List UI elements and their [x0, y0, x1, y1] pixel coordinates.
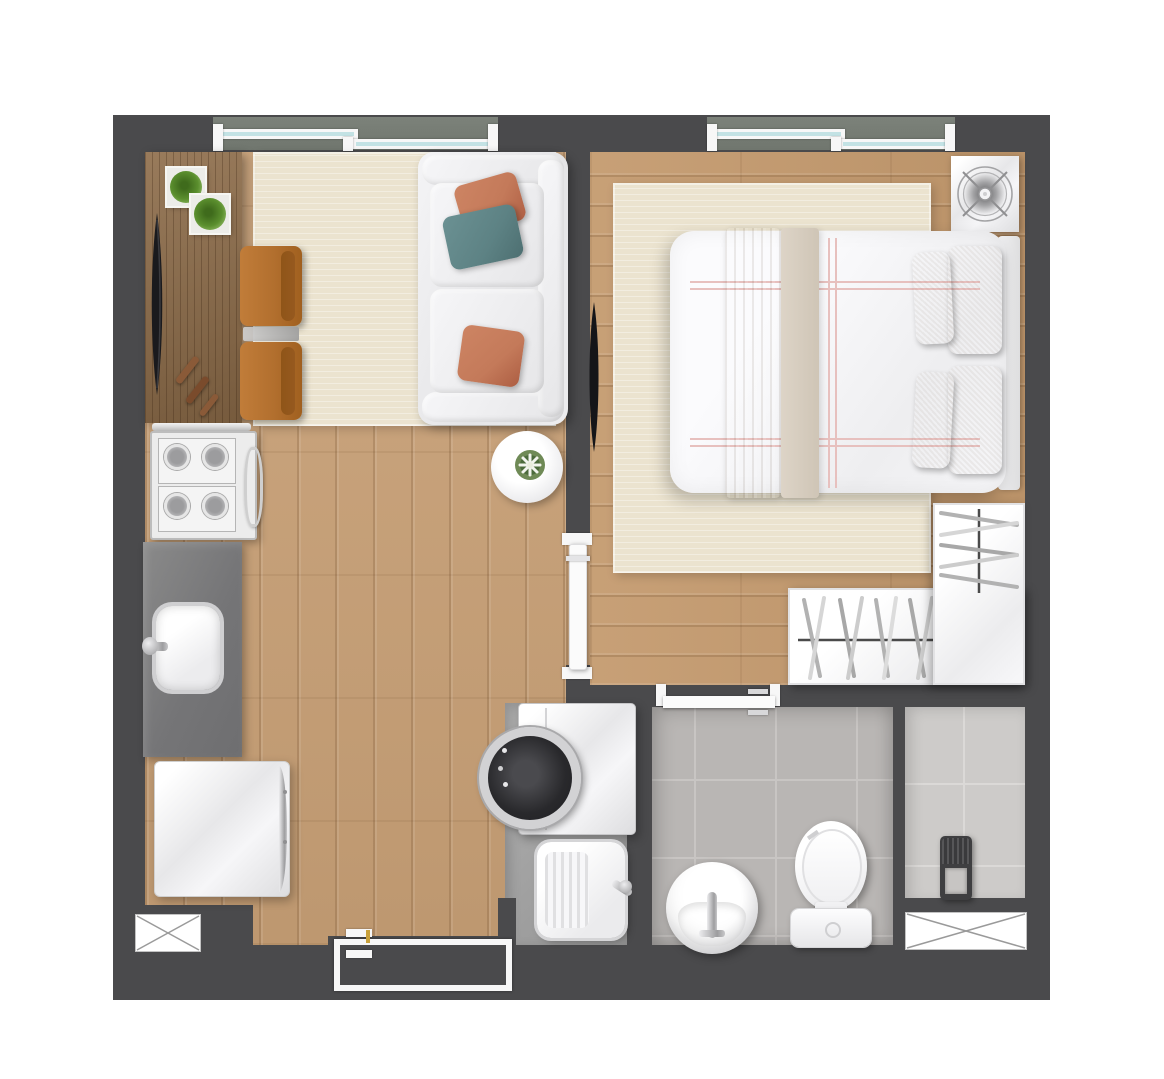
- washer-door: [479, 727, 581, 829]
- wardrobe-upper: [933, 503, 1025, 685]
- window-glass: [716, 132, 841, 136]
- throw-pillow-orange: [456, 324, 525, 388]
- side-table: [243, 327, 299, 341]
- ventilation-fan-unit: [951, 156, 1019, 232]
- window-glass: [843, 142, 945, 146]
- window-glass: [356, 142, 488, 146]
- toilet-tank: [791, 909, 871, 947]
- sofa: [418, 152, 568, 425]
- window-meeting-rail: [831, 137, 841, 151]
- wall-laundry-stub: [498, 898, 516, 945]
- fridge-door-edge: [279, 766, 287, 892]
- hanger-rail-icon: [933, 503, 1025, 595]
- bed-throw-blanket: [725, 228, 781, 498]
- toilet: [795, 821, 867, 911]
- shaft-x-icon: [906, 913, 1026, 949]
- wall-left: [113, 115, 145, 1000]
- bed-throw-blanket: [781, 228, 819, 498]
- bed-pillow-back: [948, 246, 1002, 354]
- window-glass: [222, 132, 354, 136]
- remote: [185, 375, 210, 405]
- plant-box: [191, 195, 229, 233]
- entry-door-handle: [346, 950, 372, 958]
- armchair: [240, 246, 302, 326]
- laundry-faucet-knob: [619, 880, 632, 893]
- fan-icon: [951, 156, 1019, 232]
- fridge-hinge: [283, 790, 287, 794]
- window-jamb: [488, 124, 498, 151]
- window-left: [213, 117, 498, 150]
- burner: [164, 493, 190, 519]
- plant-leaves: [194, 198, 226, 230]
- toilet-lid: [802, 829, 862, 905]
- shaft-box-right: [906, 913, 1026, 949]
- laundry-sink: [537, 842, 625, 938]
- fridge-hinge: [283, 840, 287, 844]
- washer-drum-dot: [503, 782, 508, 787]
- duvet-stripe: [835, 238, 837, 488]
- armchair: [240, 342, 302, 420]
- window-right: [707, 117, 955, 150]
- duvet-stripe: [828, 238, 830, 488]
- washer-drum-dot: [498, 766, 503, 771]
- cooktop: [150, 431, 257, 540]
- laundry-sink-ribs: [545, 852, 589, 928]
- window-jamb: [945, 124, 955, 151]
- bathroom-door: [663, 696, 775, 708]
- water-heater-ribs: [942, 838, 970, 864]
- tv-living: [146, 210, 168, 398]
- window-meeting-rail: [343, 137, 353, 151]
- floor-plan: [0, 0, 1164, 1079]
- window-jamb: [707, 124, 717, 151]
- oven-handle: [244, 447, 263, 527]
- window-jamb: [213, 124, 223, 151]
- entry-door-handle-pin: [366, 930, 370, 943]
- bed-pillow-front: [912, 251, 955, 345]
- water-heater: [940, 836, 972, 900]
- washer-drum-dot: [502, 748, 507, 753]
- tv-bedroom: [586, 300, 602, 454]
- chair-back: [281, 347, 295, 415]
- washbasin-faucet-handle: [699, 930, 725, 937]
- table-plant: [491, 431, 563, 503]
- burner: [202, 444, 228, 470]
- remote-controls: [180, 352, 230, 412]
- bathroom-door-handle: [748, 689, 768, 694]
- shaft-x-icon: [136, 915, 200, 951]
- bedroom-door: [569, 544, 587, 670]
- burner: [164, 444, 190, 470]
- bed-pillow-back: [948, 366, 1002, 474]
- bathroom-door-handle: [748, 710, 768, 715]
- round-side-table: [491, 431, 563, 503]
- refrigerator: [154, 761, 290, 897]
- water-heater-panel: [945, 868, 967, 894]
- shaft-box-left: [136, 915, 200, 951]
- wall-right: [1025, 115, 1050, 1000]
- entry-door: [334, 939, 512, 991]
- bedroom-door-handle: [566, 556, 590, 561]
- toilet-flush-button: [825, 922, 841, 938]
- burner: [202, 493, 228, 519]
- bed-pillow-front: [912, 371, 955, 469]
- chair-back: [281, 251, 295, 321]
- stove-rail: [152, 423, 251, 431]
- kitchen-faucet-knob: [142, 637, 158, 655]
